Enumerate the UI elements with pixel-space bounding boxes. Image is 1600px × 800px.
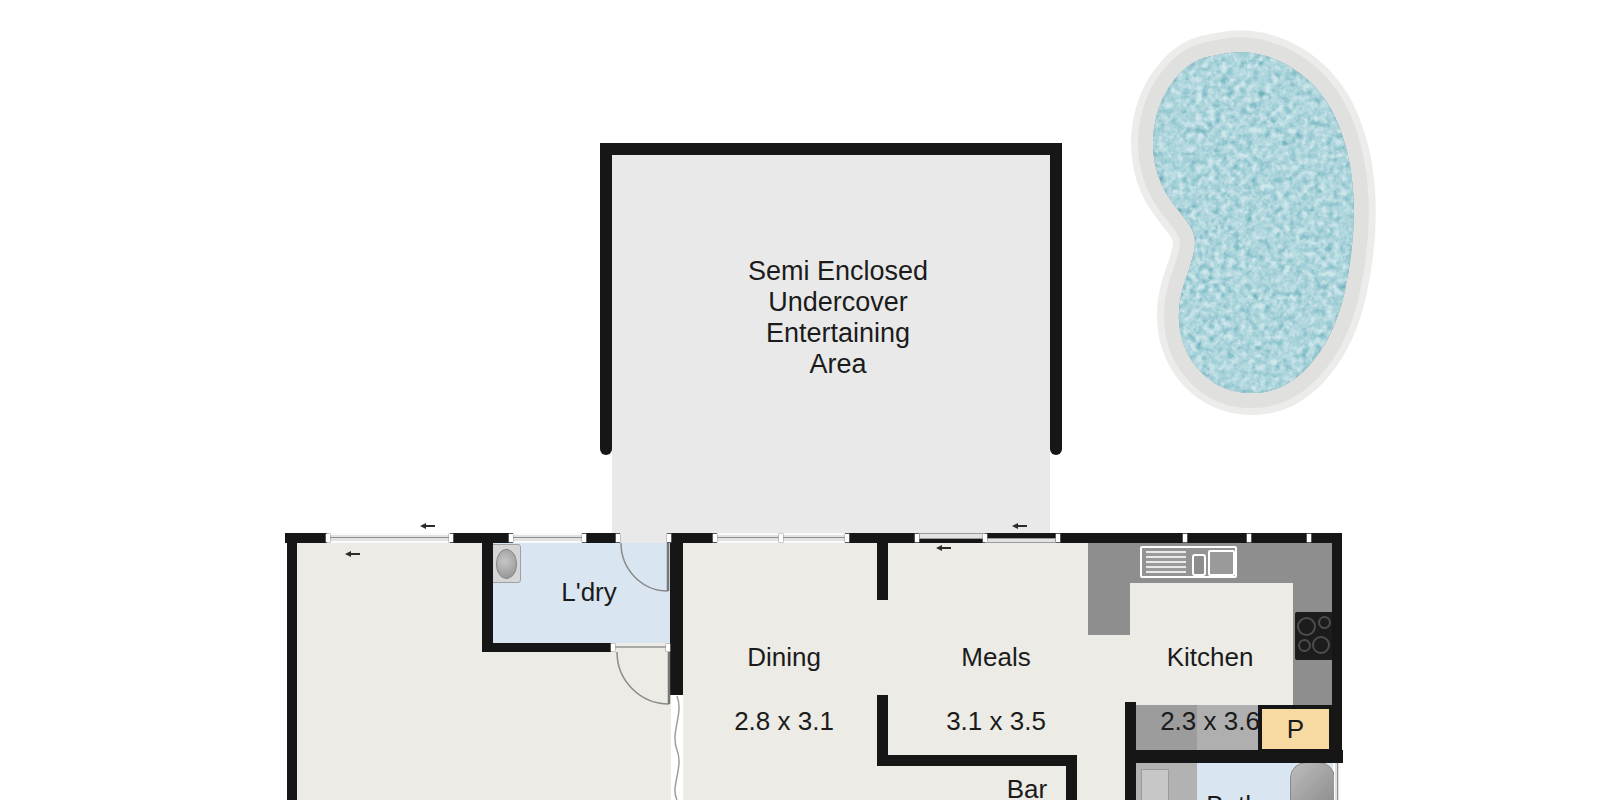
window-living-front [327, 533, 450, 543]
burner-small-tr [1318, 616, 1331, 629]
meals-dims: 3.1 x 3.5 [896, 705, 1096, 737]
sliding-door-pane-2 [985, 538, 1056, 544]
plan-marker-arrow [420, 523, 435, 529]
wall-joint-tick [1056, 534, 1060, 542]
wall-joint-tick [779, 534, 783, 542]
wall-joint-tick [983, 534, 987, 542]
meals-label: Meals 3.1 x 3.5 [896, 609, 1096, 769]
wall-joint-tick [326, 534, 330, 542]
dining-name: Dining [684, 641, 884, 673]
sink-tap [1192, 554, 1206, 576]
sink-basin [1208, 550, 1235, 576]
window-laundry [513, 533, 582, 543]
wall-joint-tick [667, 534, 671, 542]
sink-drainer [1146, 551, 1186, 573]
pool-surround [1154, 53, 1353, 392]
laundry-label: L'dry [489, 576, 689, 608]
entry-door-opening [620, 533, 667, 543]
entertaining-right-wall [1050, 143, 1062, 455]
floorplan-page: { "rooms": { "entertaining": { "name": "… [0, 0, 1600, 800]
bathroom-window [1334, 763, 1341, 800]
dining-dims: 2.8 x 3.1 [684, 705, 884, 737]
burner-large-br [1312, 636, 1330, 654]
wall-joint-tick [1247, 534, 1251, 542]
wall-joint-tick [509, 534, 513, 542]
wall-joint-tick [1183, 534, 1187, 542]
house-right-wall [1332, 533, 1342, 763]
laundry-bottom-door-opening [611, 643, 670, 652]
wall-joint-tick [449, 534, 453, 542]
wall-joint-tick [845, 534, 849, 542]
wall-joint-tick [611, 644, 615, 651]
kitchen-dims: 2.3 x 3.6 [1110, 705, 1310, 737]
entertaining-top-wall [600, 143, 1062, 155]
wall-joint-tick [582, 534, 586, 542]
wall-joint-tick [713, 534, 717, 542]
bath-label: Bath [1133, 789, 1333, 800]
wall-break-band [671, 695, 683, 800]
entertaining-area-label: Semi Enclosed Undercover Entertaining Ar… [738, 256, 938, 380]
wall-joint-tick [616, 534, 620, 542]
dining-meals-divider-top [877, 533, 888, 600]
kitchen-sink-icon [1140, 546, 1237, 578]
entertaining-left-wall [600, 143, 612, 455]
wall-joint-tick [666, 644, 670, 651]
kitchen-label: Kitchen 2.3 x 3.6 [1110, 609, 1310, 769]
sliding-door-pane-1 [919, 533, 985, 539]
meals-name: Meals [896, 641, 1096, 673]
kitchen-name: Kitchen [1110, 641, 1310, 673]
swimming-pool [1090, 15, 1390, 425]
dining-label: Dining 2.8 x 3.1 [684, 609, 884, 769]
bar-label: Bar [927, 773, 1127, 800]
pool-water [1154, 53, 1353, 392]
laundry-tub-basin [496, 549, 517, 579]
laundry-bottom-wall [482, 643, 611, 652]
house-left-wall [287, 533, 297, 800]
wall-joint-tick [915, 534, 919, 542]
laundry-dining-divider-wall [670, 533, 683, 695]
wall-joint-tick [1307, 534, 1311, 542]
